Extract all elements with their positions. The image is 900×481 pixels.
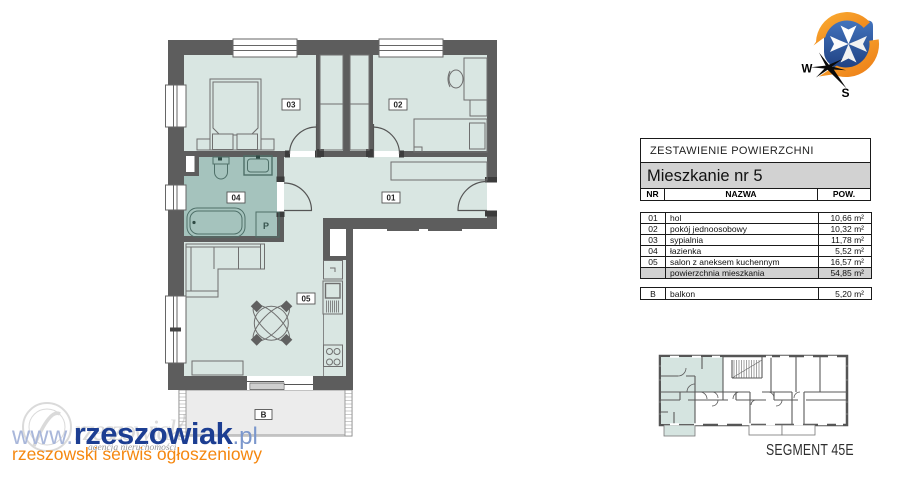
svg-text:02: 02 (394, 101, 403, 110)
svg-text:05: 05 (302, 295, 311, 304)
svg-text:S: S (842, 86, 850, 100)
svg-text:P: P (263, 221, 269, 231)
svg-text:03: 03 (287, 101, 296, 110)
svg-text:B: B (261, 411, 267, 420)
svg-text:01: 01 (387, 194, 396, 203)
svg-text:W: W (802, 64, 813, 76)
svg-text:04: 04 (232, 194, 241, 203)
